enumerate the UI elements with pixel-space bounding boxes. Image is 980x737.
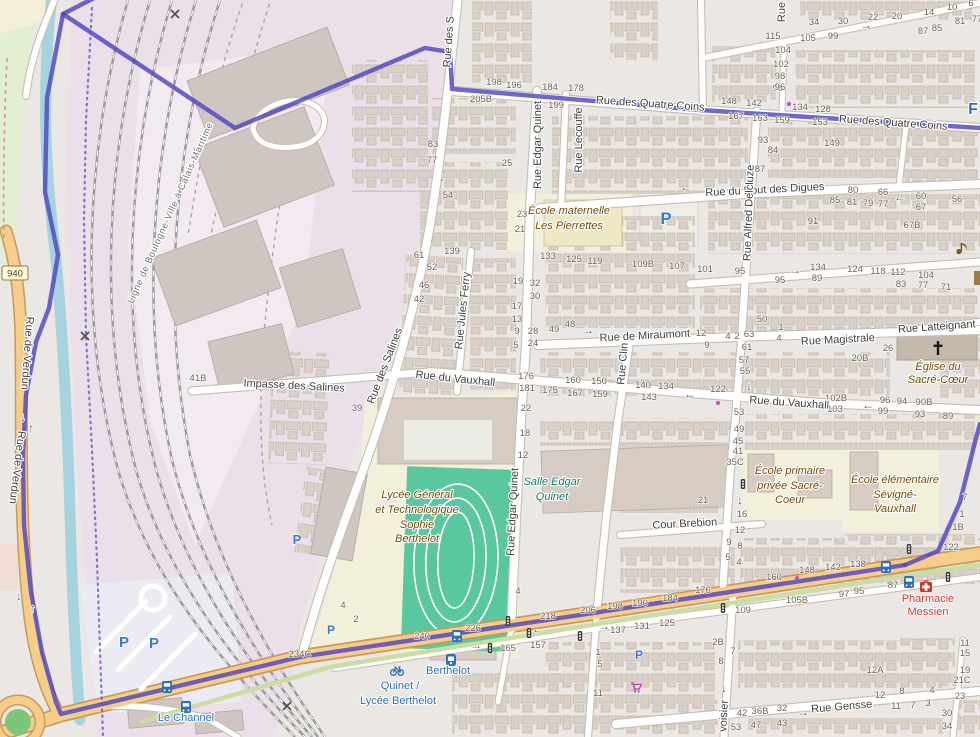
house-number: 12 xyxy=(518,450,529,461)
house-number: 36B xyxy=(752,706,769,717)
house-number: 87 xyxy=(888,580,899,591)
bus-icon xyxy=(881,561,891,573)
house-number: 94 xyxy=(897,396,908,407)
poi-label: Quinet xyxy=(536,491,569,503)
poi-label: Église du xyxy=(915,360,960,373)
oneway-arrow-icon: ↓ xyxy=(737,493,743,507)
house-number: 3 xyxy=(925,698,930,709)
house-number: 105 xyxy=(800,33,816,44)
oneway-arrow-icon: → xyxy=(797,705,809,719)
house-number: 125 xyxy=(659,618,675,629)
house-number: 26 xyxy=(883,343,894,354)
house-number: 21C xyxy=(953,675,971,686)
house-number: 24 xyxy=(528,338,539,349)
house-number: 119 xyxy=(587,256,602,267)
house-number: 30 xyxy=(530,291,541,302)
house-number: 18 xyxy=(520,428,531,439)
house-number: 184 xyxy=(662,593,678,604)
house-number: 49 xyxy=(549,324,560,335)
house-number: 81 xyxy=(955,16,966,27)
house-number: 61 xyxy=(414,250,425,261)
house-number: 112 xyxy=(890,267,905,278)
road-ref-badge: 940 xyxy=(2,266,28,280)
poi-label: Salle Edgar xyxy=(524,476,582,488)
house-number: 61 xyxy=(742,342,753,353)
house-number: 13 xyxy=(512,314,523,325)
house-number: 142 xyxy=(825,562,841,573)
house-number: 160 xyxy=(565,375,581,386)
poi-label: Sévigné- xyxy=(873,489,917,501)
house-number: 48 xyxy=(565,319,576,330)
house-number: 1 xyxy=(595,647,600,658)
house-number: 176 xyxy=(518,371,534,382)
house-number: 21 xyxy=(515,224,526,235)
house-number: 25 xyxy=(502,158,513,169)
transport-label: F xyxy=(968,101,978,118)
oneway-arrow-icon: ↓ xyxy=(746,379,752,393)
house-number: 1 xyxy=(959,509,964,520)
house-number: 4 xyxy=(340,600,345,611)
house-number: 105B xyxy=(786,595,808,606)
poi-label: et Technologique xyxy=(375,504,458,516)
house-number: 20B xyxy=(852,353,869,364)
house-number: 81 xyxy=(847,197,858,208)
house-number: 184 xyxy=(542,82,558,93)
transport-label: Le Channel xyxy=(158,712,214,724)
house-number: 7 xyxy=(730,646,735,657)
signal-icon xyxy=(488,643,492,653)
house-number: 181 xyxy=(519,383,535,394)
aid-icon xyxy=(920,581,932,592)
house-number: 57 xyxy=(739,355,750,366)
poi-label: Les Pierrettes xyxy=(535,220,603,232)
house-number: 83 xyxy=(896,279,907,290)
signal-icon xyxy=(721,603,725,613)
oneway-arrow-icon: ← xyxy=(894,190,906,204)
house-number: 41B xyxy=(190,373,207,384)
house-number: 12 xyxy=(735,525,746,536)
house-number: 99 xyxy=(878,406,889,417)
poi-label: Berthelot xyxy=(395,533,440,545)
house-number: 67B xyxy=(904,220,921,231)
house-number: 125 xyxy=(566,254,582,265)
house-number: 9 xyxy=(704,340,709,351)
house-number: 122 xyxy=(943,542,959,553)
house-number: 21 xyxy=(698,495,709,506)
house-number: 1B xyxy=(952,522,964,533)
house-number: 79 xyxy=(863,198,874,209)
oneway-arrow-icon: → xyxy=(598,619,610,633)
house-number: 97 xyxy=(839,589,850,600)
transport-label: Berthelot xyxy=(426,665,470,677)
house-number: 80 xyxy=(848,185,859,196)
house-number: 118 xyxy=(870,266,885,277)
house-number: 34 xyxy=(942,721,953,732)
house-number: 109 xyxy=(735,605,751,616)
house-number: 56 xyxy=(952,194,963,205)
street-name-label: Rue xyxy=(776,2,788,22)
house-number: 12A xyxy=(867,665,885,676)
house-number: 150 xyxy=(591,376,607,387)
house-number: 6 xyxy=(968,0,973,9)
house-number: 85 xyxy=(830,195,841,206)
house-number: 142 xyxy=(746,98,762,109)
house-number: 124 xyxy=(847,264,863,275)
house-number: 77 xyxy=(878,199,889,210)
oneway-arrow-icon: ← xyxy=(680,180,692,194)
house-number: 55 xyxy=(740,366,751,377)
poi-label: Coeur xyxy=(775,494,806,506)
house-number: 134 xyxy=(810,262,826,273)
oneway-arrow-icon: → xyxy=(470,638,482,652)
parking-icon: P xyxy=(660,209,671,228)
house-number: 95 xyxy=(735,266,746,277)
house-number: 98 xyxy=(775,71,786,82)
house-number: 167 xyxy=(567,388,583,399)
house-number: 107 xyxy=(669,261,685,272)
house-number: 103 xyxy=(827,404,843,415)
house-number: 7 xyxy=(962,492,967,503)
house-number: 5 xyxy=(513,340,518,351)
house-number: 134 xyxy=(658,381,674,392)
poi-label: privée Sacré- xyxy=(756,480,823,492)
house-number: 198 xyxy=(607,601,623,612)
house-number: 12 xyxy=(696,328,707,339)
transport-label: Lycée Berthelot xyxy=(360,695,436,707)
poi-label: École élémentaire xyxy=(851,473,939,486)
signal-icon xyxy=(741,479,745,489)
house-number: 226 xyxy=(465,623,481,634)
house-number: 133 xyxy=(540,251,556,262)
oneway-arrow-icon: ↓ xyxy=(16,589,22,603)
house-number: 138 xyxy=(850,559,866,570)
house-number: 11 xyxy=(891,701,901,712)
house-number: 159 xyxy=(774,115,790,126)
house-number: 109B xyxy=(632,259,654,270)
house-number: 54 xyxy=(443,190,454,201)
house-number: 85 xyxy=(932,23,943,34)
house-number: 28 xyxy=(528,326,539,337)
house-number: 234C xyxy=(289,649,312,660)
map-svg: 940 ←←→↓→→←←↓↓↓→←→→↓↑↓↑ PPPPPP 198196184… xyxy=(0,0,980,737)
house-number: 22 xyxy=(521,403,532,414)
house-number: 4 xyxy=(776,333,781,344)
signal-icon xyxy=(578,631,582,641)
house-number: 20 xyxy=(892,11,903,22)
oneway-arrow-icon: ↓ xyxy=(721,681,727,695)
house-number: 8 xyxy=(899,686,904,697)
map-canvas[interactable]: 940 ←←→↓→→←←↓↓↓→←→→↓↑↓↑ PPPPPP 198196184… xyxy=(0,0,980,737)
house-number: 2B xyxy=(712,637,724,648)
house-number: 115 xyxy=(765,31,780,42)
house-number: 34 xyxy=(809,17,820,28)
house-number: 157 xyxy=(530,640,546,651)
house-number: 198 xyxy=(486,77,502,88)
house-number: 47 xyxy=(751,720,762,731)
house-number: 128 xyxy=(815,104,831,115)
house-number: 104 xyxy=(775,45,791,56)
house-number: 205B xyxy=(470,94,492,105)
house-number: 71 xyxy=(941,282,952,293)
house-number: 90B xyxy=(916,397,933,408)
oneway-arrow-icon: ↓ xyxy=(439,170,445,184)
house-number: 99 xyxy=(828,31,839,42)
poi-label: Sophie xyxy=(400,519,434,531)
house-number: 176 xyxy=(695,585,711,596)
house-number: 7 xyxy=(910,700,915,711)
house-number: 8 xyxy=(737,541,742,552)
bus-icon xyxy=(904,576,914,588)
house-number: 143 xyxy=(641,392,657,403)
house-number: 87 xyxy=(918,26,929,37)
house-number: 4 xyxy=(929,685,934,696)
street-name-label: Rue Edgar Quinet xyxy=(532,101,544,189)
house-number: 190 xyxy=(632,598,648,609)
house-number: 14 xyxy=(924,7,935,18)
oneway-arrow-icon: ↑ xyxy=(30,601,36,615)
house-number: 175 xyxy=(542,385,558,396)
parking-icon: P xyxy=(635,648,643,662)
house-number: 66 xyxy=(878,187,889,198)
house-number: 218 xyxy=(540,611,556,622)
house-number: 149 xyxy=(824,138,840,149)
house-number: 49 xyxy=(734,424,745,435)
parking-icon: P xyxy=(149,635,159,652)
house-number: 23 xyxy=(517,209,528,220)
house-number: 4 xyxy=(725,331,730,342)
house-number: 32 xyxy=(530,278,541,289)
parking-icon: P xyxy=(119,634,129,651)
house-number: 42 xyxy=(737,708,748,719)
bus-icon xyxy=(162,681,172,693)
house-number: 35C xyxy=(726,457,744,468)
house-number: 89 xyxy=(812,273,823,284)
dot-icon xyxy=(787,102,791,106)
poi-label: École maternelle xyxy=(528,204,610,217)
house-number: 83 xyxy=(428,139,439,150)
signal-icon xyxy=(527,628,531,638)
road-ref-text: 940 xyxy=(7,269,23,280)
dot-icon xyxy=(716,401,720,405)
house-number: 4 xyxy=(515,586,520,597)
house-number: 9 xyxy=(726,537,731,548)
oneway-arrow-icon: ↓ xyxy=(20,410,26,424)
house-number: 206 xyxy=(580,605,596,616)
street-name-label: voisier xyxy=(717,699,731,732)
house-number: 77 xyxy=(918,280,929,291)
house-number: 95 xyxy=(854,586,865,597)
poi-label: Lycée Général xyxy=(381,489,453,501)
house-number: 50 xyxy=(757,314,768,325)
house-number: 23 xyxy=(955,691,966,702)
house-number: 101 xyxy=(697,264,713,275)
house-number: 9 xyxy=(514,326,519,337)
house-number: 153 xyxy=(812,117,828,128)
poi-label: Vauxhall xyxy=(874,503,916,515)
house-number: 30 xyxy=(838,16,849,27)
house-number: 42 xyxy=(414,294,425,305)
house-number: 63 xyxy=(744,329,755,340)
house-number: 96 xyxy=(775,82,786,93)
house-number: 196 xyxy=(506,80,522,91)
house-number: 240 xyxy=(414,631,430,642)
house-number: 84 xyxy=(768,145,779,156)
house-number: 1 xyxy=(778,322,783,333)
house-number: 89 xyxy=(943,411,954,422)
house-number: 95 xyxy=(775,275,786,286)
house-number: 167 xyxy=(728,111,744,122)
house-number: 93 xyxy=(915,409,926,420)
house-number: 39 xyxy=(352,403,363,414)
house-number: 131 xyxy=(634,621,650,632)
house-number: 77 xyxy=(427,155,438,166)
oneway-arrow-icon: → xyxy=(582,323,594,337)
house-number: 5 xyxy=(597,659,602,670)
house-number: 60 xyxy=(916,191,927,202)
oneway-arrow-icon: → xyxy=(789,263,801,277)
house-number: 19 xyxy=(513,276,524,287)
house-number: 165 xyxy=(500,643,516,654)
house-number: 77 xyxy=(972,14,980,25)
house-number: 159 xyxy=(592,389,608,400)
house-number: 96 xyxy=(880,395,891,406)
oneway-arrow-icon: ↑ xyxy=(28,421,34,435)
house-number: 43 xyxy=(777,718,788,729)
poi-label: Messien xyxy=(908,606,949,618)
house-number: 139 xyxy=(444,246,460,257)
house-number: 163 xyxy=(752,113,768,124)
dot-icon xyxy=(795,576,799,580)
parking-icon: P xyxy=(293,532,302,547)
house-number: 16 xyxy=(737,509,748,520)
poi-label: Sacré-Cœur xyxy=(908,374,970,386)
house-number: 41 xyxy=(733,446,744,457)
house-number: 140 xyxy=(635,380,651,391)
house-number: 17 xyxy=(512,301,523,312)
bus-icon xyxy=(452,630,462,642)
street-name-label: Rue Lecouffe xyxy=(573,107,585,172)
transport-label: Quinet / xyxy=(381,680,420,692)
house-number: 11 xyxy=(593,688,603,699)
house-number: 67 xyxy=(916,202,927,213)
house-number: 46 xyxy=(419,280,430,291)
house-number: 52 xyxy=(427,262,438,273)
house-number: 53 xyxy=(734,407,745,418)
poibar-icon xyxy=(974,271,980,285)
house-number: 15 xyxy=(960,648,971,659)
house-number: 137 xyxy=(610,625,626,636)
house-number: 10 xyxy=(947,2,958,13)
poi-label: Pharmacie xyxy=(902,593,955,605)
oneway-arrow-icon: ← xyxy=(862,398,874,412)
oneway-arrow-icon: ← xyxy=(532,622,544,636)
house-number: 102 xyxy=(773,59,789,70)
house-number: 91 xyxy=(808,216,819,227)
house-number: 178 xyxy=(568,83,584,94)
house-number: 148 xyxy=(799,565,815,576)
house-number: 160 xyxy=(766,572,782,583)
house-number: 30 xyxy=(942,708,953,719)
house-number: 22 xyxy=(868,12,879,23)
house-number: 4 xyxy=(736,557,741,568)
house-number: 134 xyxy=(792,102,808,113)
parking-icon: P xyxy=(327,623,335,637)
house-number: 199 xyxy=(548,100,564,111)
house-number: 12 xyxy=(875,690,886,701)
house-number: 148 xyxy=(721,96,737,107)
signal-icon xyxy=(946,572,950,582)
signal-icon xyxy=(506,616,510,626)
signal-icon xyxy=(907,544,911,554)
poi-label: École primaire xyxy=(755,464,825,477)
oneway-arrow-icon: ← xyxy=(684,387,696,401)
house-number: 2 xyxy=(734,331,739,342)
house-number: 5 xyxy=(725,552,730,563)
house-number: 93 xyxy=(758,135,769,146)
house-number: 8 xyxy=(718,656,723,667)
house-number: 32 xyxy=(777,703,788,714)
house-number: 53 xyxy=(731,722,742,733)
house-number: 2 xyxy=(353,614,358,625)
house-number: 122 xyxy=(710,384,726,395)
